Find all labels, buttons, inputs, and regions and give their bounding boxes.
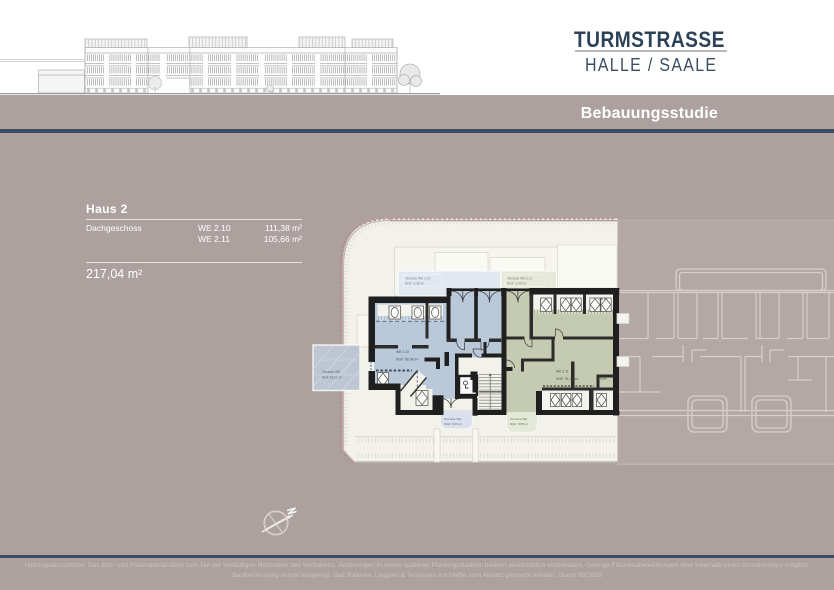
svg-text:Abstellr.: Abstellr.	[598, 377, 608, 381]
svg-text:NGF: 86,08 m²: NGF: 86,08 m²	[396, 358, 419, 362]
svg-text:NGF: 3,36 m²: NGF: 3,36 m²	[405, 282, 424, 286]
svg-text:NGF: 91,40 m²: NGF: 91,40 m²	[556, 377, 579, 381]
svg-text:1,36 m²: 1,36 m²	[598, 297, 607, 301]
svg-text:WE 2.10: WE 2.10	[396, 350, 409, 354]
svg-text:Terrasse WE: Terrasse WE	[510, 417, 527, 421]
svg-text:NGF: 8,20 m²: NGF: 8,20 m²	[444, 422, 462, 426]
svg-text:Terrasse WE: Terrasse WE	[444, 417, 461, 421]
svg-text:NGF 15,21 m²: NGF 15,21 m²	[322, 376, 342, 380]
svg-text:Terrasse WE 2.11: Terrasse WE 2.11	[507, 277, 532, 281]
svg-text:Terrasse WE: Terrasse WE	[322, 370, 340, 374]
svg-text:NGF: 8,85 m²: NGF: 8,85 m²	[510, 422, 528, 426]
svg-text:Terrasse WE 2.10: Terrasse WE 2.10	[405, 277, 431, 281]
svg-text:NGF: 3,40 m²: NGF: 3,40 m²	[507, 282, 526, 286]
svg-text:WE 2.11: WE 2.11	[556, 370, 569, 374]
